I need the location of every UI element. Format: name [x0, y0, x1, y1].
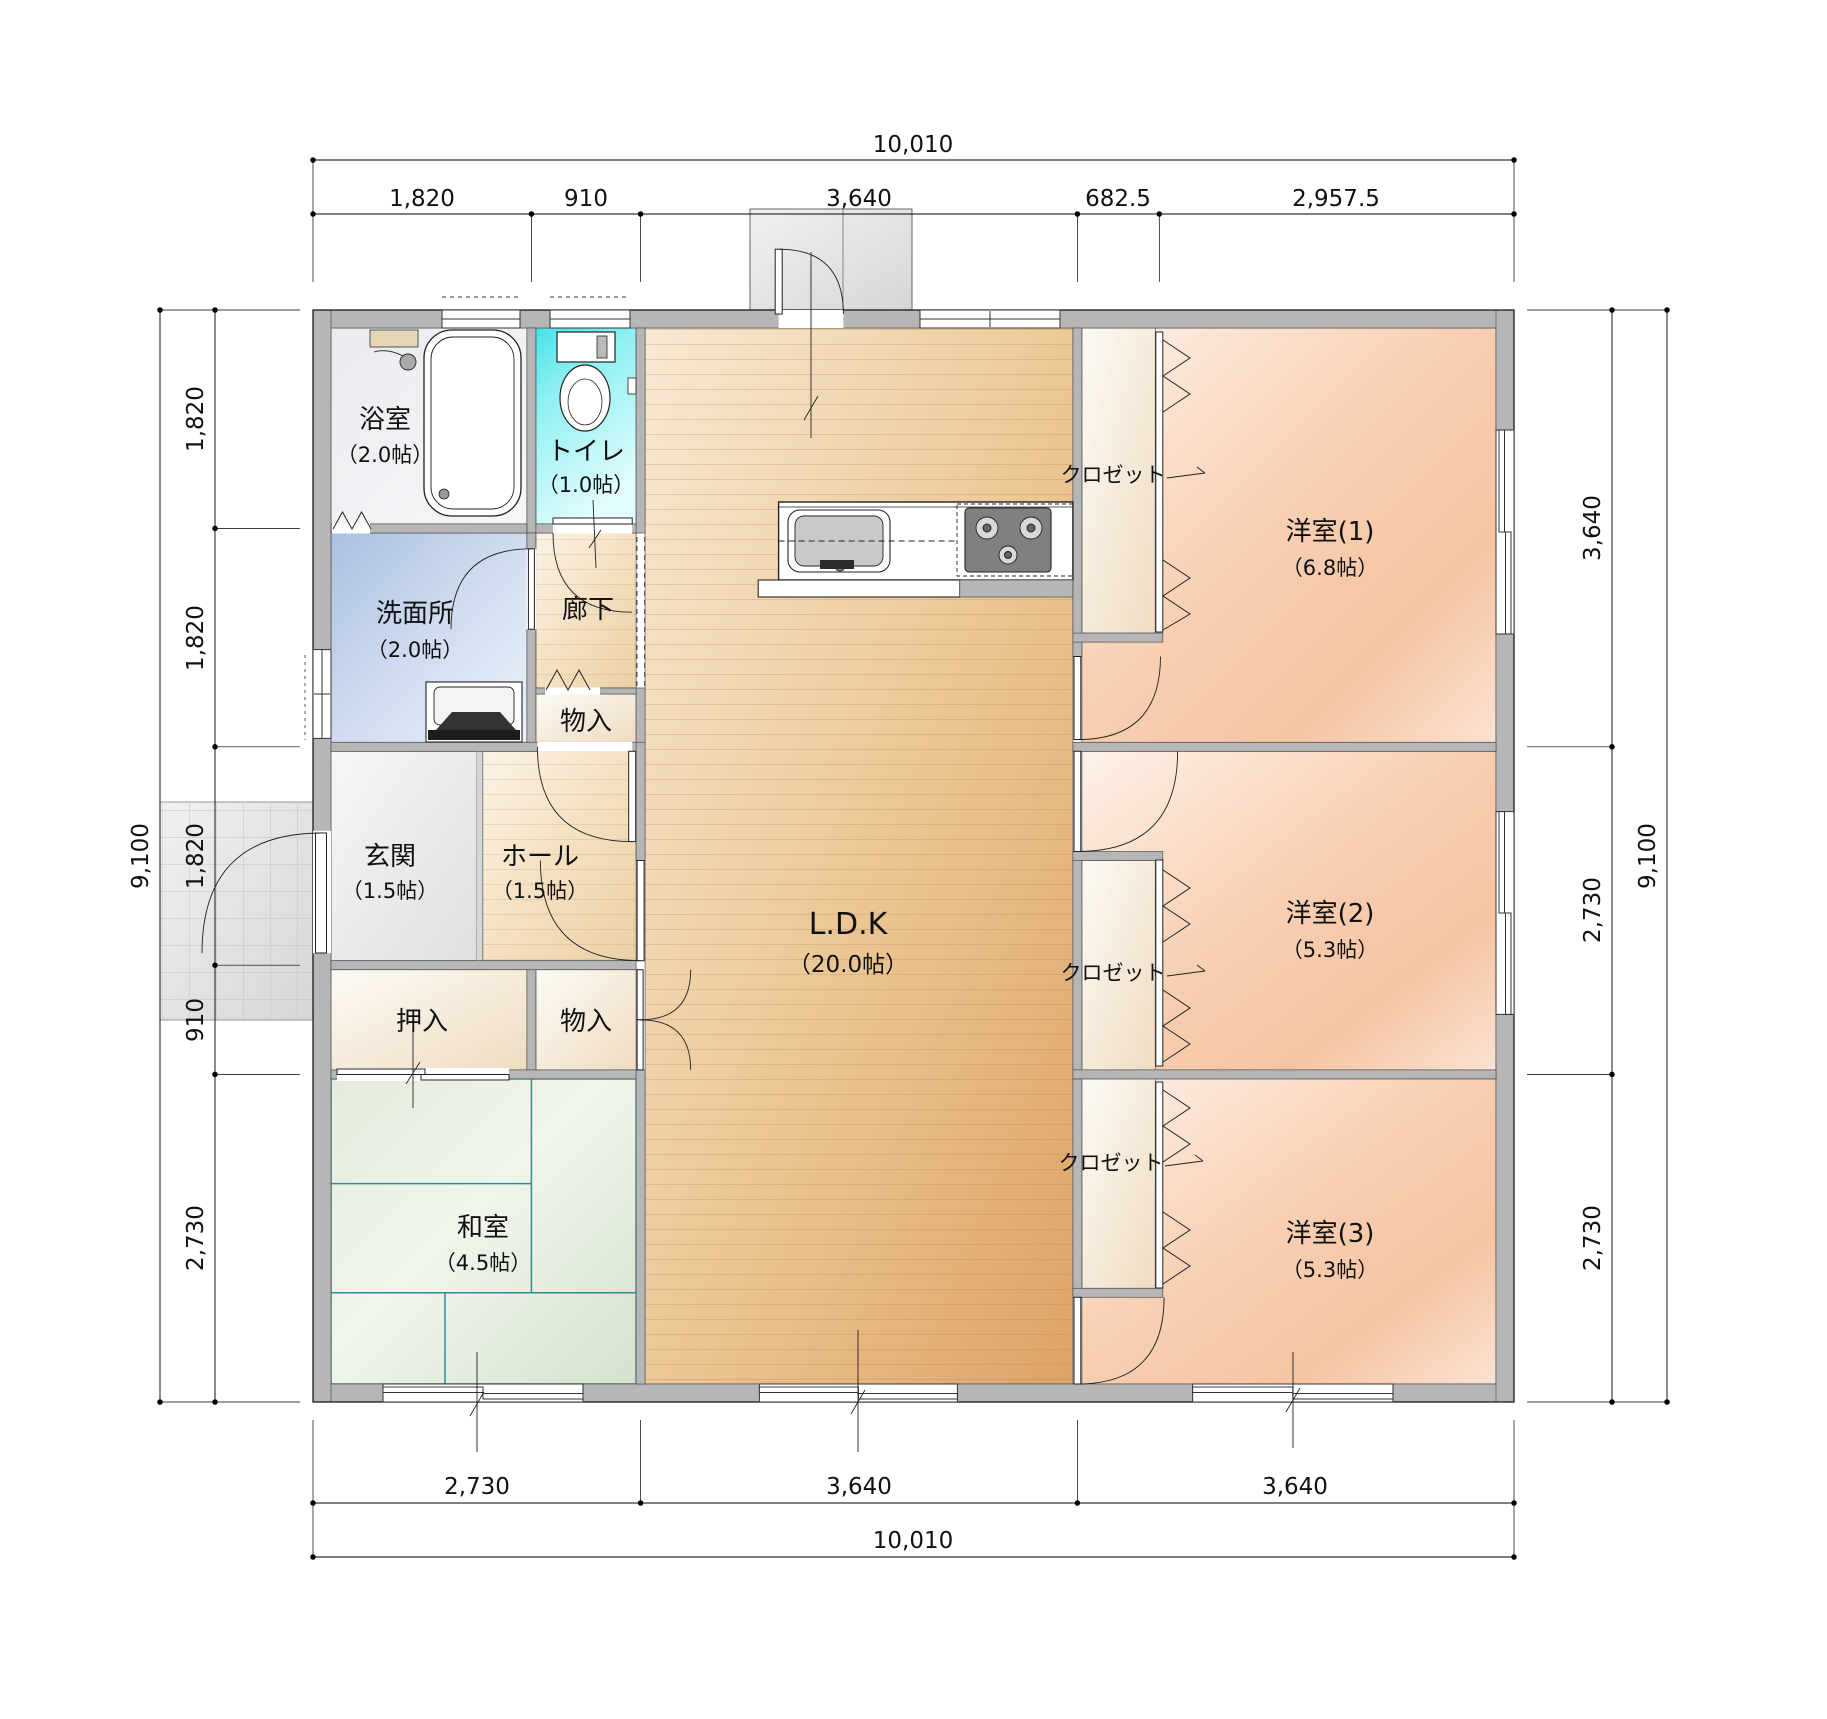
japanese-room-size: （4.5帖） [435, 1251, 531, 1275]
kitchen-counter [758, 502, 1073, 597]
ldk-label: L.D.K [809, 907, 889, 942]
dim-top-seg-0: 1,820 [389, 186, 455, 212]
entrance-step [477, 751, 483, 960]
washroom-size: （2.0帖） [367, 638, 463, 662]
floor-plan-canvas: 10,010 1,820 910 3,640 682.5 2,957.5 2,7… [0, 0, 1827, 1719]
washroom-label: 洗面所 [376, 599, 454, 629]
closet1-label: クロゼット [1061, 463, 1166, 487]
dim-bottom-seg-0: 2,730 [444, 1474, 510, 1500]
washroom-left-window [313, 650, 331, 739]
dim-bottom-total: 10,010 [873, 1528, 953, 1554]
dim-bottom-seg-2: 3,640 [1262, 1474, 1328, 1500]
dim-right-seg-1: 2,730 [1580, 877, 1606, 943]
western1-label: 洋室(1) [1286, 517, 1375, 547]
hall-label: ホール [501, 842, 579, 872]
bath-top-window [442, 297, 520, 328]
dim-left-seg-2: 1,820 [183, 823, 209, 889]
dim-top-total: 10,010 [873, 132, 953, 158]
corridor-ldk-opening [637, 537, 645, 686]
dim-left-seg-1: 1,820 [183, 605, 209, 671]
western2-size: （5.3帖） [1282, 938, 1378, 962]
kitchen-stove [965, 508, 1051, 572]
vanity-unit [426, 682, 522, 742]
back-porch [750, 209, 912, 310]
dim-top [311, 158, 1517, 282]
bathtub [424, 330, 521, 516]
western1-window [1496, 430, 1514, 634]
western3-size: （5.3帖） [1282, 1258, 1378, 1282]
dim-right-seg-2: 2,730 [1580, 1205, 1606, 1271]
western1-size: （6.8帖） [1282, 556, 1378, 580]
bath-size: （2.0帖） [337, 443, 433, 467]
western3-label: 洋室(3) [1286, 1219, 1375, 1249]
entrance-size: （1.5帖） [342, 879, 438, 903]
kitchen-top-window [920, 310, 1060, 328]
dim-top-seg-3: 682.5 [1085, 186, 1151, 212]
closet3-floor [1082, 1079, 1155, 1288]
closet2-label: クロゼット [1061, 961, 1166, 985]
hall-storage-label: 物入 [560, 1007, 612, 1037]
bath-label: 浴室 [359, 405, 411, 435]
dim-top-seg-4: 2,957.5 [1292, 186, 1380, 212]
corridor-storage-label: 物入 [560, 707, 612, 737]
floor-plan-drawing: 10,010 1,820 910 3,640 682.5 2,957.5 2,7… [0, 0, 1827, 1719]
dim-left-seg-3: 910 [183, 998, 209, 1042]
entrance-label: 玄関 [364, 842, 416, 872]
corridor-label: 廊下 [562, 595, 614, 625]
toilet-size: （1.0帖） [538, 473, 634, 497]
dim-left-seg-0: 1,820 [183, 386, 209, 452]
oshiire-sliding-door [337, 1068, 509, 1081]
dim-right-seg-0: 3,640 [1580, 495, 1606, 561]
dim-top-seg-2: 3,640 [826, 186, 892, 212]
toilet-top-window [550, 297, 630, 328]
western2-label: 洋室(2) [1286, 899, 1375, 929]
dim-left-total: 9,100 [128, 823, 154, 889]
dim-right-total: 9,100 [1635, 823, 1661, 889]
closet3-label: クロゼット [1059, 1151, 1164, 1175]
dim-left-seg-4: 2,730 [183, 1205, 209, 1271]
oshiire-label: 押入 [396, 1007, 448, 1037]
dim-top-seg-1: 910 [564, 186, 608, 212]
hall-size: （1.5帖） [492, 879, 588, 903]
western2-window [1496, 812, 1514, 1015]
dim-bottom-seg-1: 3,640 [826, 1474, 892, 1500]
ldk-size: （20.0帖） [788, 952, 908, 978]
japanese-room-label: 和室 [457, 1213, 509, 1243]
toilet-label: トイレ [547, 437, 625, 467]
